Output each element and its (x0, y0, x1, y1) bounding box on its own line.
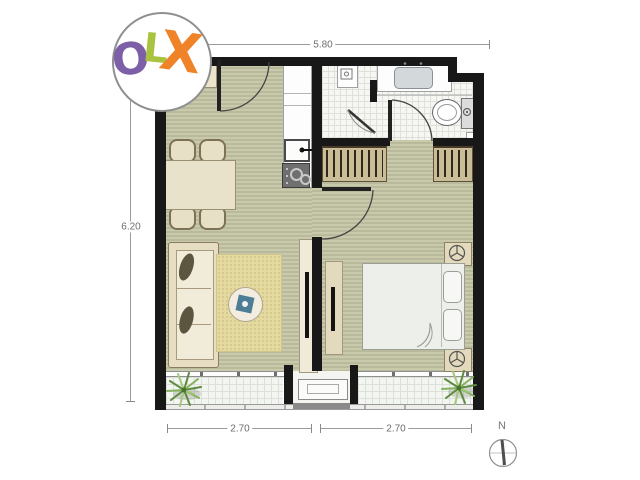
dim-bottom-right-label: 2.70 (383, 424, 408, 435)
entry-door-swing-arc (220, 62, 269, 111)
bathroom-door-swing-arc (392, 100, 432, 141)
bedroom-door-swing-arc (322, 190, 373, 239)
floor-plan-image: 5.80 6.20 2.70 2.70 N O L X (0, 0, 640, 480)
shower-door-leaf (348, 110, 375, 133)
olx-letter-x: X (156, 23, 205, 82)
compass-icon (487, 437, 519, 469)
dim-bottom-left-label: 2.70 (227, 424, 252, 435)
compass-north-label: N (490, 420, 514, 432)
olx-watermark: O L X (112, 12, 212, 112)
dim-top-label: 5.80 (310, 40, 335, 51)
plan-detail-overlay (155, 57, 484, 410)
vanity-faucet-icon (404, 62, 407, 65)
vanity-faucet-icon (420, 62, 423, 65)
lamp-icon (450, 352, 465, 367)
dim-left-label: 6.20 (118, 222, 143, 233)
lamp-icon (450, 246, 465, 261)
washer-drum-icon (341, 69, 352, 79)
